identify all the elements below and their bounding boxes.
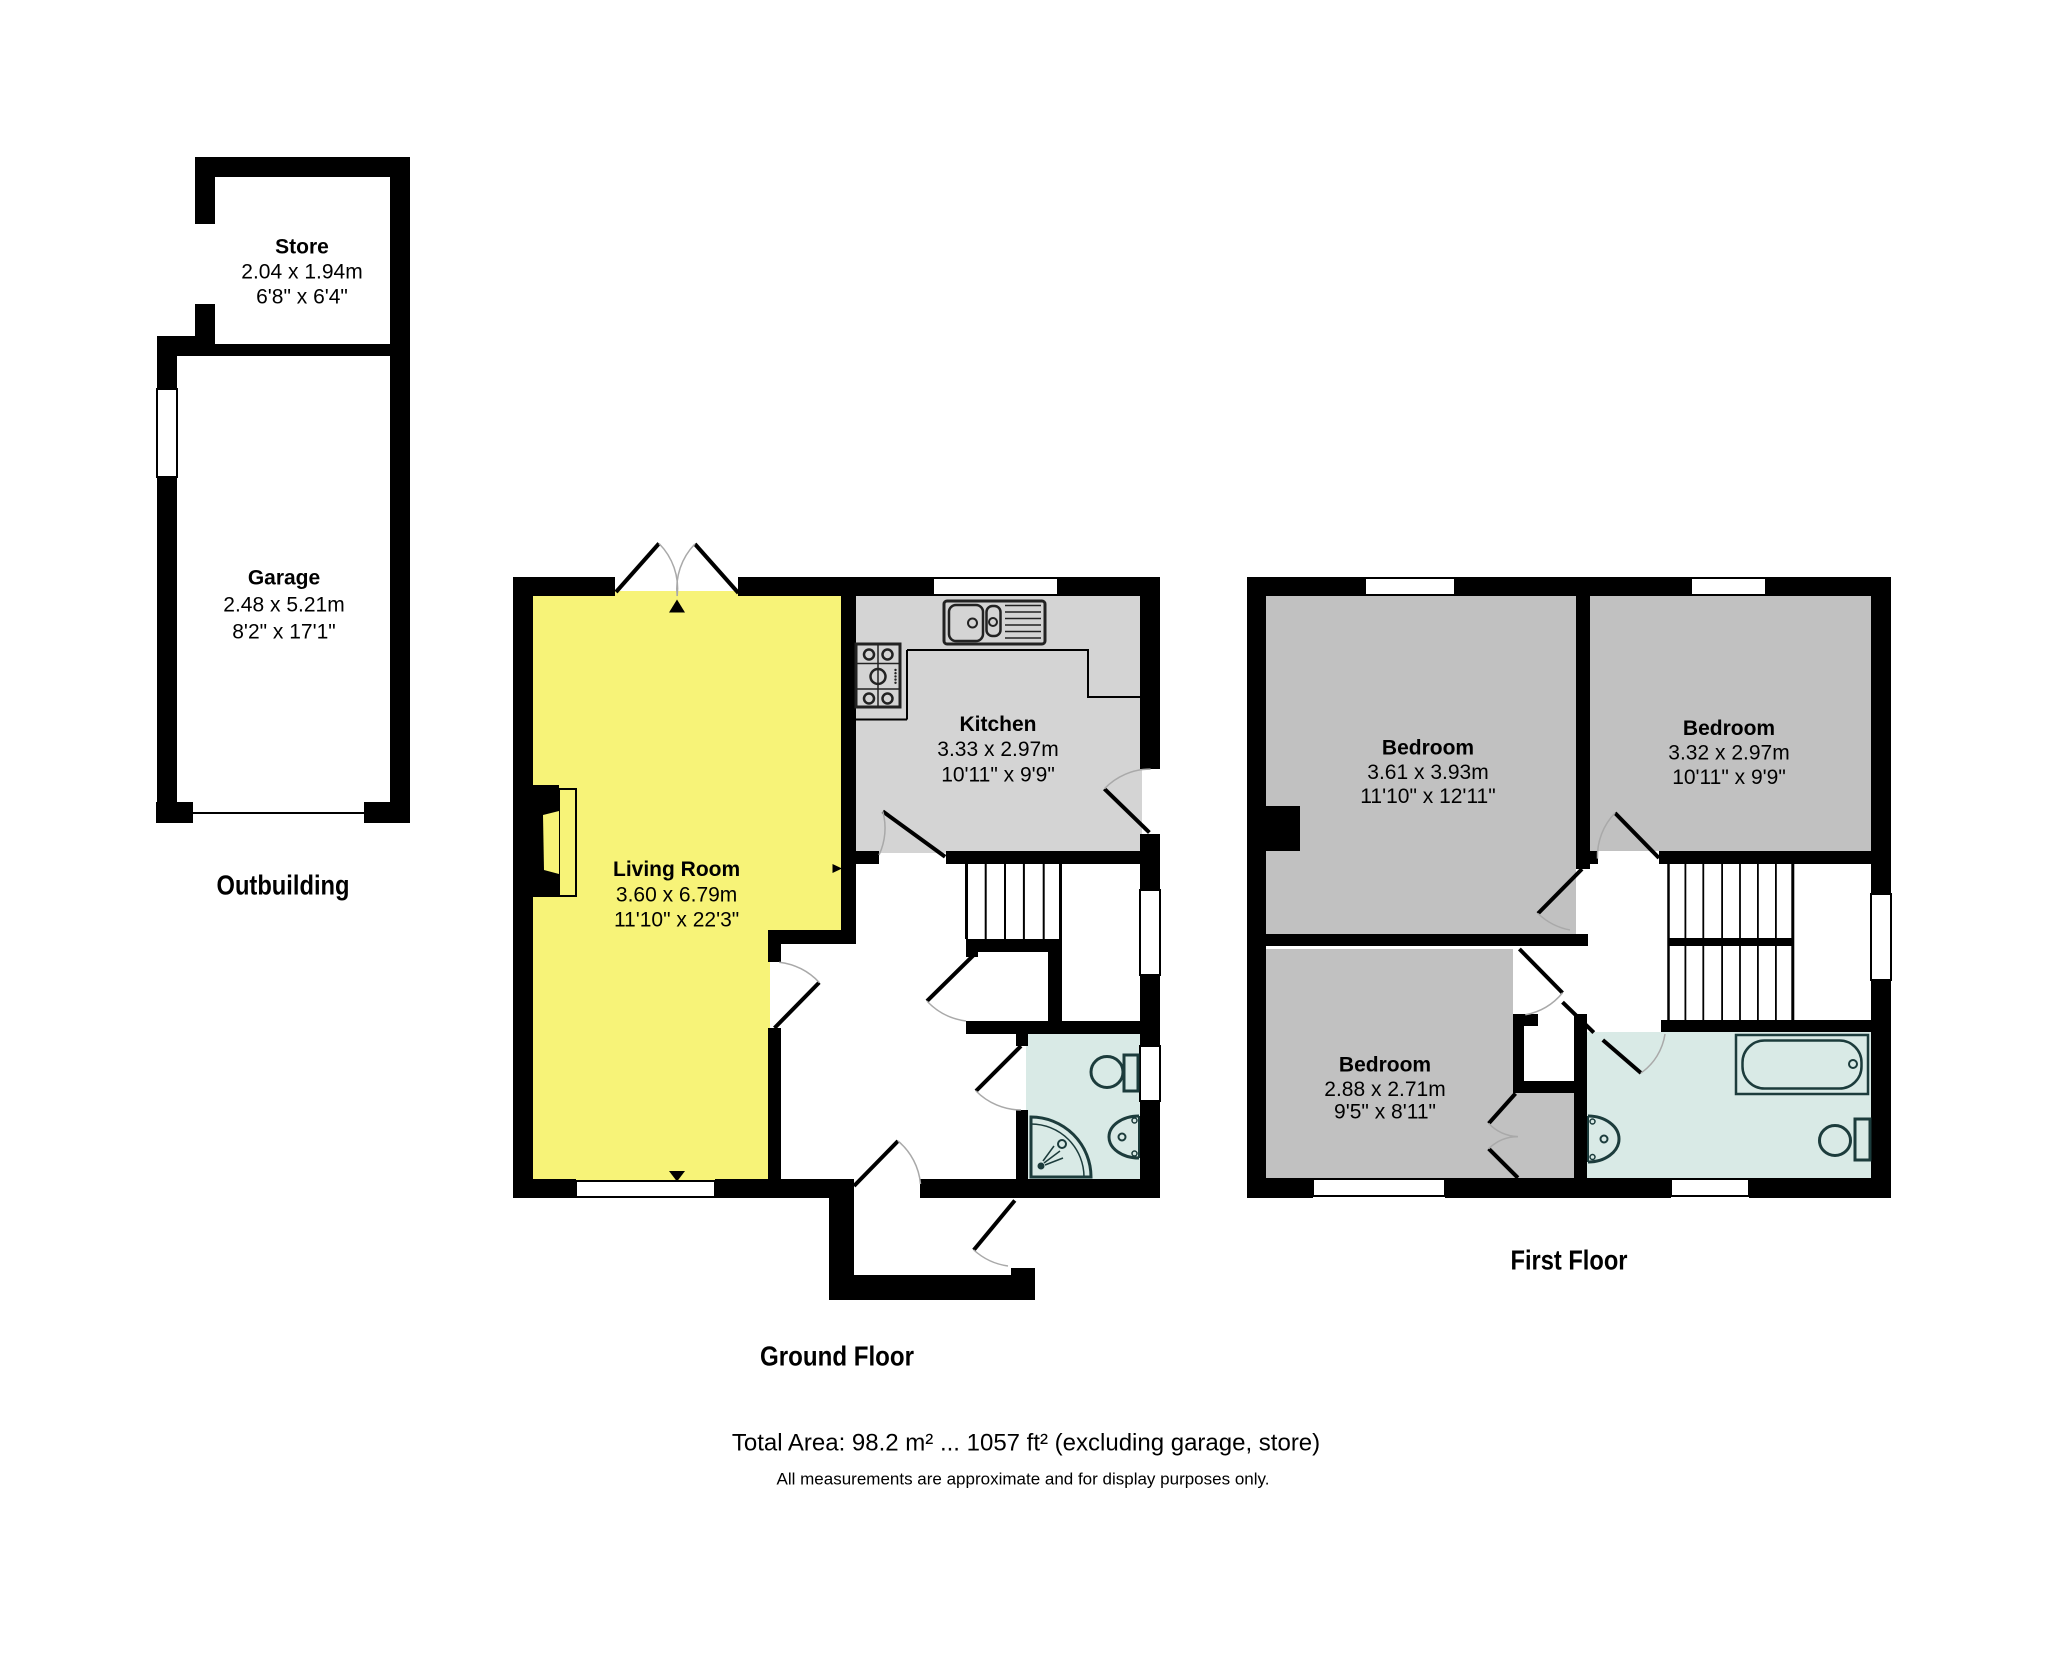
svg-text:6'8" x 6'4": 6'8" x 6'4" — [256, 286, 348, 309]
svg-text:3.61 x 3.93m: 3.61 x 3.93m — [1367, 761, 1488, 784]
svg-text:Garage: Garage — [248, 567, 320, 590]
svg-text:11'10" x 12'11": 11'10" x 12'11" — [1360, 785, 1495, 808]
svg-text:2.04 x 1.94m: 2.04 x 1.94m — [241, 261, 362, 284]
svg-text:Kitchen: Kitchen — [959, 713, 1036, 736]
svg-text:10'11" x 9'9": 10'11" x 9'9" — [941, 764, 1055, 787]
svg-text:3.33 x 2.97m: 3.33 x 2.97m — [937, 738, 1058, 761]
svg-text:Total Area: 98.2 m² ... 1057 f: Total Area: 98.2 m² ... 1057 ft² (exclud… — [732, 1430, 1320, 1457]
svg-text:3.32 x 2.97m: 3.32 x 2.97m — [1668, 741, 1789, 764]
svg-text:Bedroom: Bedroom — [1339, 1054, 1431, 1077]
svg-text:8'2" x 17'1": 8'2" x 17'1" — [232, 621, 336, 644]
svg-text:Living Room: Living Room — [613, 858, 740, 881]
svg-text:2.48 x 5.21m: 2.48 x 5.21m — [223, 594, 344, 617]
svg-text:All measurements are approxima: All measurements are approximate and for… — [777, 1470, 1270, 1489]
svg-text:Ground Floor: Ground Floor — [760, 1341, 914, 1372]
svg-text:2.88 x 2.71m: 2.88 x 2.71m — [1324, 1078, 1445, 1101]
svg-text:9'5" x 8'11": 9'5" x 8'11" — [1334, 1101, 1436, 1124]
svg-text:3.60 x 6.79m: 3.60 x 6.79m — [616, 883, 737, 906]
svg-text:11'10" x 22'3": 11'10" x 22'3" — [614, 909, 739, 932]
svg-text:Store: Store — [275, 236, 329, 259]
svg-text:Outbuilding: Outbuilding — [217, 870, 350, 901]
svg-text:Bedroom: Bedroom — [1382, 737, 1474, 760]
svg-text:Bedroom: Bedroom — [1683, 717, 1775, 740]
svg-text:First Floor: First Floor — [1511, 1245, 1628, 1276]
svg-text:10'11" x 9'9": 10'11" x 9'9" — [1672, 766, 1786, 789]
